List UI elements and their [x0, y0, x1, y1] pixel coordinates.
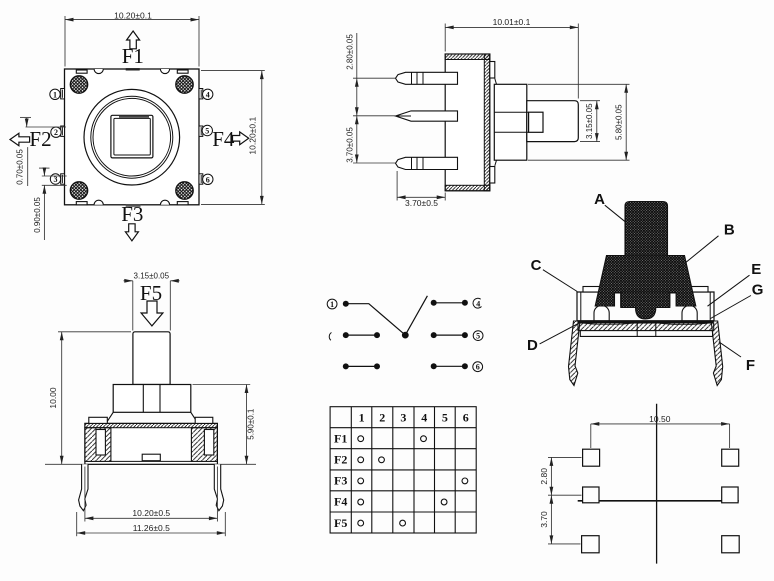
svg-text:F1: F1 [334, 432, 347, 446]
svg-text:5: 5 [476, 332, 480, 341]
svg-text:5: 5 [205, 127, 209, 136]
svg-text:6: 6 [463, 411, 469, 425]
svg-text:2.80±0.05: 2.80±0.05 [345, 34, 354, 70]
svg-text:F1: F1 [122, 44, 144, 68]
svg-text:10.00: 10.00 [48, 387, 58, 409]
svg-text:F5: F5 [334, 516, 347, 530]
svg-text:4: 4 [476, 299, 480, 308]
svg-text:3.15±0.05: 3.15±0.05 [134, 272, 170, 281]
svg-text:5.80±0.05: 5.80±0.05 [615, 104, 624, 140]
svg-text:3.70±0.05: 3.70±0.05 [345, 127, 354, 163]
svg-text:E: E [751, 261, 761, 278]
svg-text:4: 4 [421, 411, 427, 425]
svg-text:F: F [746, 357, 755, 374]
svg-text:0.90±0.05: 0.90±0.05 [33, 197, 42, 233]
svg-text:10.01±0.1: 10.01±0.1 [493, 17, 531, 27]
svg-text:10.20±0.5: 10.20±0.5 [132, 508, 170, 518]
svg-text:0.70±0.05: 0.70±0.05 [16, 149, 25, 185]
svg-text:F2: F2 [334, 453, 347, 467]
svg-text:10.20±0.1: 10.20±0.1 [114, 10, 152, 20]
svg-text:3.15±0.05: 3.15±0.05 [585, 103, 594, 139]
svg-text:1: 1 [359, 411, 365, 425]
svg-text:2.80: 2.80 [539, 468, 549, 485]
svg-text:5: 5 [442, 411, 448, 425]
svg-text:F2: F2 [29, 127, 51, 151]
svg-text:F3: F3 [121, 202, 143, 226]
svg-text:5.90±0.1: 5.90±0.1 [247, 408, 256, 440]
svg-text:11.26±0.5: 11.26±0.5 [133, 523, 170, 533]
svg-text:2: 2 [379, 411, 385, 425]
svg-text:10.20±0.1: 10.20±0.1 [248, 117, 258, 155]
svg-text:6: 6 [476, 363, 480, 372]
svg-text:G: G [752, 282, 764, 299]
svg-text:F4: F4 [212, 127, 235, 151]
svg-text:B: B [724, 222, 735, 239]
svg-text:6: 6 [206, 175, 210, 184]
svg-text:3.70: 3.70 [539, 511, 549, 528]
svg-text:4: 4 [206, 90, 210, 99]
svg-text:2: 2 [54, 128, 58, 137]
svg-text:3: 3 [400, 411, 406, 425]
svg-text:3.70±0.5: 3.70±0.5 [405, 198, 438, 208]
svg-text:10.50: 10.50 [649, 414, 671, 424]
svg-text:F4: F4 [334, 495, 347, 509]
svg-text:F3: F3 [334, 474, 347, 488]
svg-text:A: A [594, 191, 605, 208]
svg-text:C: C [531, 257, 542, 274]
svg-text:1: 1 [330, 300, 334, 309]
svg-text:1: 1 [53, 90, 57, 99]
svg-text:D: D [527, 337, 538, 354]
